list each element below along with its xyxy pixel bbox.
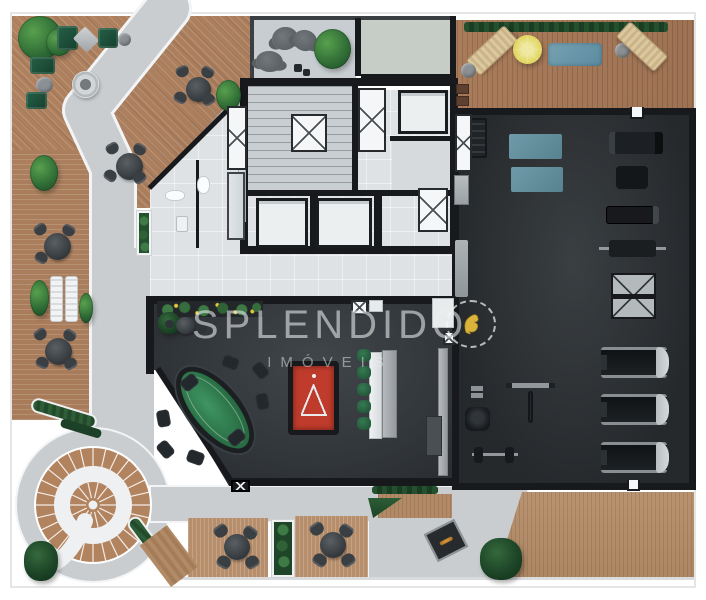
plant [314,29,351,69]
chair-dark2 [255,392,271,411]
chair-dark [32,221,49,237]
plant-dark [480,538,522,580]
door-notch [627,480,640,491]
xbox [227,106,247,170]
watermark-subtitle: IMÓVEIS [170,352,490,372]
pouf [118,33,131,46]
elliptical [611,273,656,319]
chair-dark2 [185,448,205,466]
tri-green [368,498,402,518]
sink [176,216,188,232]
matbrown [456,84,469,94]
chair-dark [32,326,49,342]
firetable [424,519,468,562]
xbox [418,188,448,232]
mat-blue [509,134,562,159]
plant [30,280,49,316]
toilet [165,190,185,201]
chair-dark [174,64,190,79]
machine-a [609,132,663,154]
bench-wall [455,240,468,297]
floor-plan: SPLENDIDO IMÓVEIS [0,0,706,600]
rack-t [506,381,555,427]
watermark-title: SPLENDIDO [170,302,490,348]
barbell-bench [472,440,518,469]
planterbox [271,519,295,578]
benchpress [599,234,666,263]
table-dark [44,233,71,260]
mat-pool [548,43,602,66]
stool-green [357,400,371,413]
stool-green [357,417,371,430]
glass [227,172,245,240]
pouf [36,77,53,93]
matbrown [456,96,469,106]
toilet [197,176,210,194]
chair-dark2 [156,409,172,428]
db [467,393,487,398]
xbox [455,114,472,172]
hedge-planter [136,210,152,256]
machine-b [616,166,648,189]
lounger-w [50,276,63,322]
logo-glyph [454,307,488,341]
pool-table [288,361,339,435]
plant-dark [24,541,58,581]
chair-green [98,28,118,48]
elev [256,198,308,248]
brand-logo [446,300,496,348]
firering [72,71,99,98]
treadmill [601,442,667,473]
chair-dark [104,140,121,156]
stool-green [357,383,371,396]
sideboard [426,416,442,456]
db [467,386,487,391]
cabinet [454,175,469,205]
lounger-w [65,276,78,322]
xbox [291,114,327,152]
elev [316,198,372,248]
dot-dark [303,69,310,76]
hedge-strip [372,486,438,494]
treadmill [601,394,667,425]
door-notch [630,107,644,119]
chair-dark2 [155,439,176,460]
xbox [358,88,386,152]
chair-round [255,50,284,73]
chair-green [26,92,47,109]
dot-dark [294,64,302,72]
machine-c [465,407,490,431]
plant [79,293,93,323]
parasol [513,35,542,64]
treadmill [601,347,667,378]
mat-blue [511,167,563,192]
xbox-dark [231,480,250,492]
furniture-layer [0,0,706,600]
elev [398,90,448,134]
plant [30,155,58,191]
chair-green [30,57,55,74]
rower [606,206,659,224]
pouf [461,63,476,78]
